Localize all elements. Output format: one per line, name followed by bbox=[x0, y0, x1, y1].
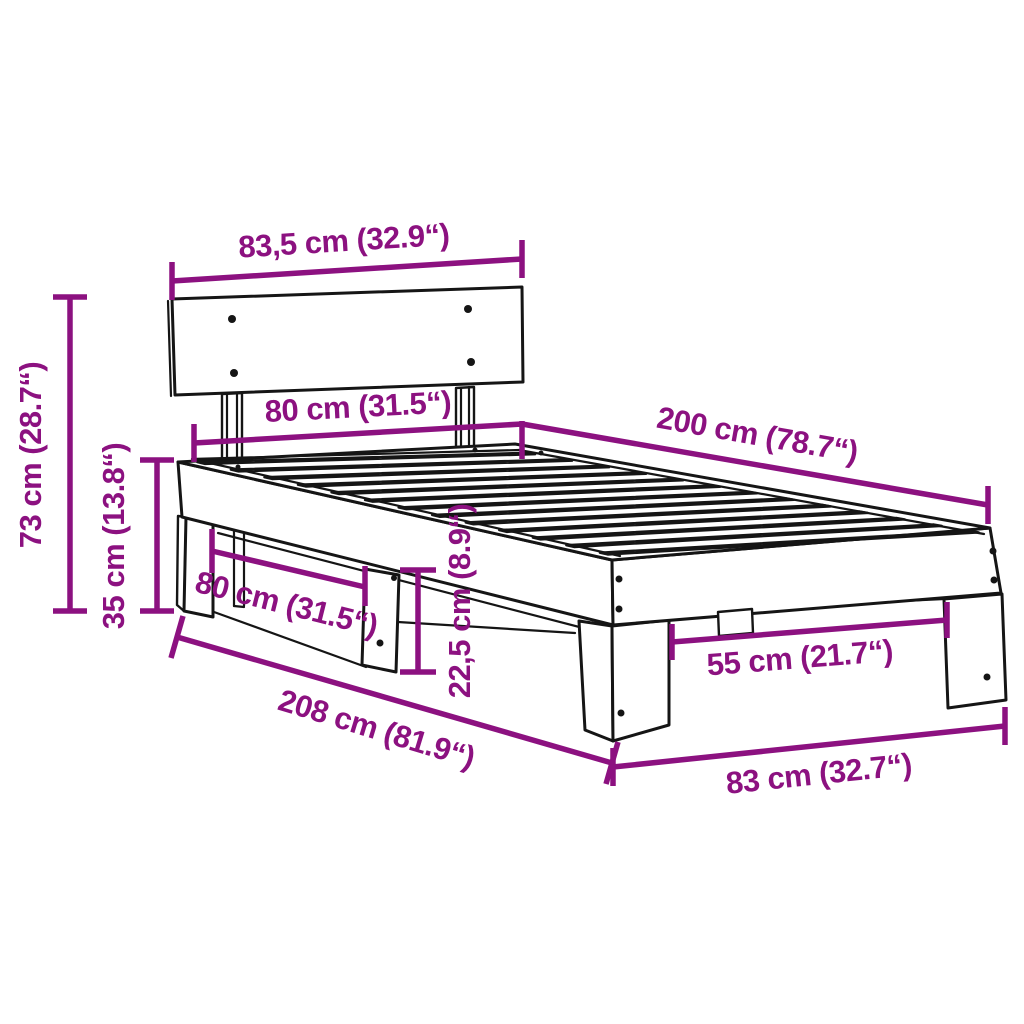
screw-icon bbox=[616, 576, 623, 583]
dim-label-total-height: 73 cm (28.7“) bbox=[13, 362, 48, 549]
screw-icon bbox=[236, 465, 241, 470]
screw-icon bbox=[230, 369, 238, 377]
headboard-post-right bbox=[456, 387, 474, 448]
beam-end bbox=[718, 609, 753, 636]
headboard-panel bbox=[168, 287, 523, 396]
screw-icon bbox=[618, 710, 625, 717]
screw-icon bbox=[377, 640, 384, 647]
dim-label-head-frame-height: 35 cm (13.8“) bbox=[96, 443, 131, 630]
screw-icon bbox=[539, 451, 544, 456]
diagram-canvas: 83,5 cm (32.9“) 80 cm (31.5“) 200 cm (78… bbox=[0, 0, 1024, 1024]
screw-icon bbox=[467, 358, 475, 366]
screw-icon bbox=[464, 305, 472, 313]
dim-label-under-bed-clearance: 22,5 cm (8.9“) bbox=[442, 504, 477, 699]
screw-icon bbox=[991, 577, 998, 584]
foot-back-leg bbox=[944, 594, 1006, 708]
screw-icon bbox=[990, 548, 997, 555]
screw-icon bbox=[473, 448, 478, 453]
screw-icon bbox=[984, 674, 991, 681]
screw-icon bbox=[228, 315, 236, 323]
headboard-post-left bbox=[222, 393, 242, 461]
foot-front-leg bbox=[579, 620, 669, 741]
screw-icon bbox=[616, 606, 623, 613]
screw-icon bbox=[391, 575, 397, 581]
